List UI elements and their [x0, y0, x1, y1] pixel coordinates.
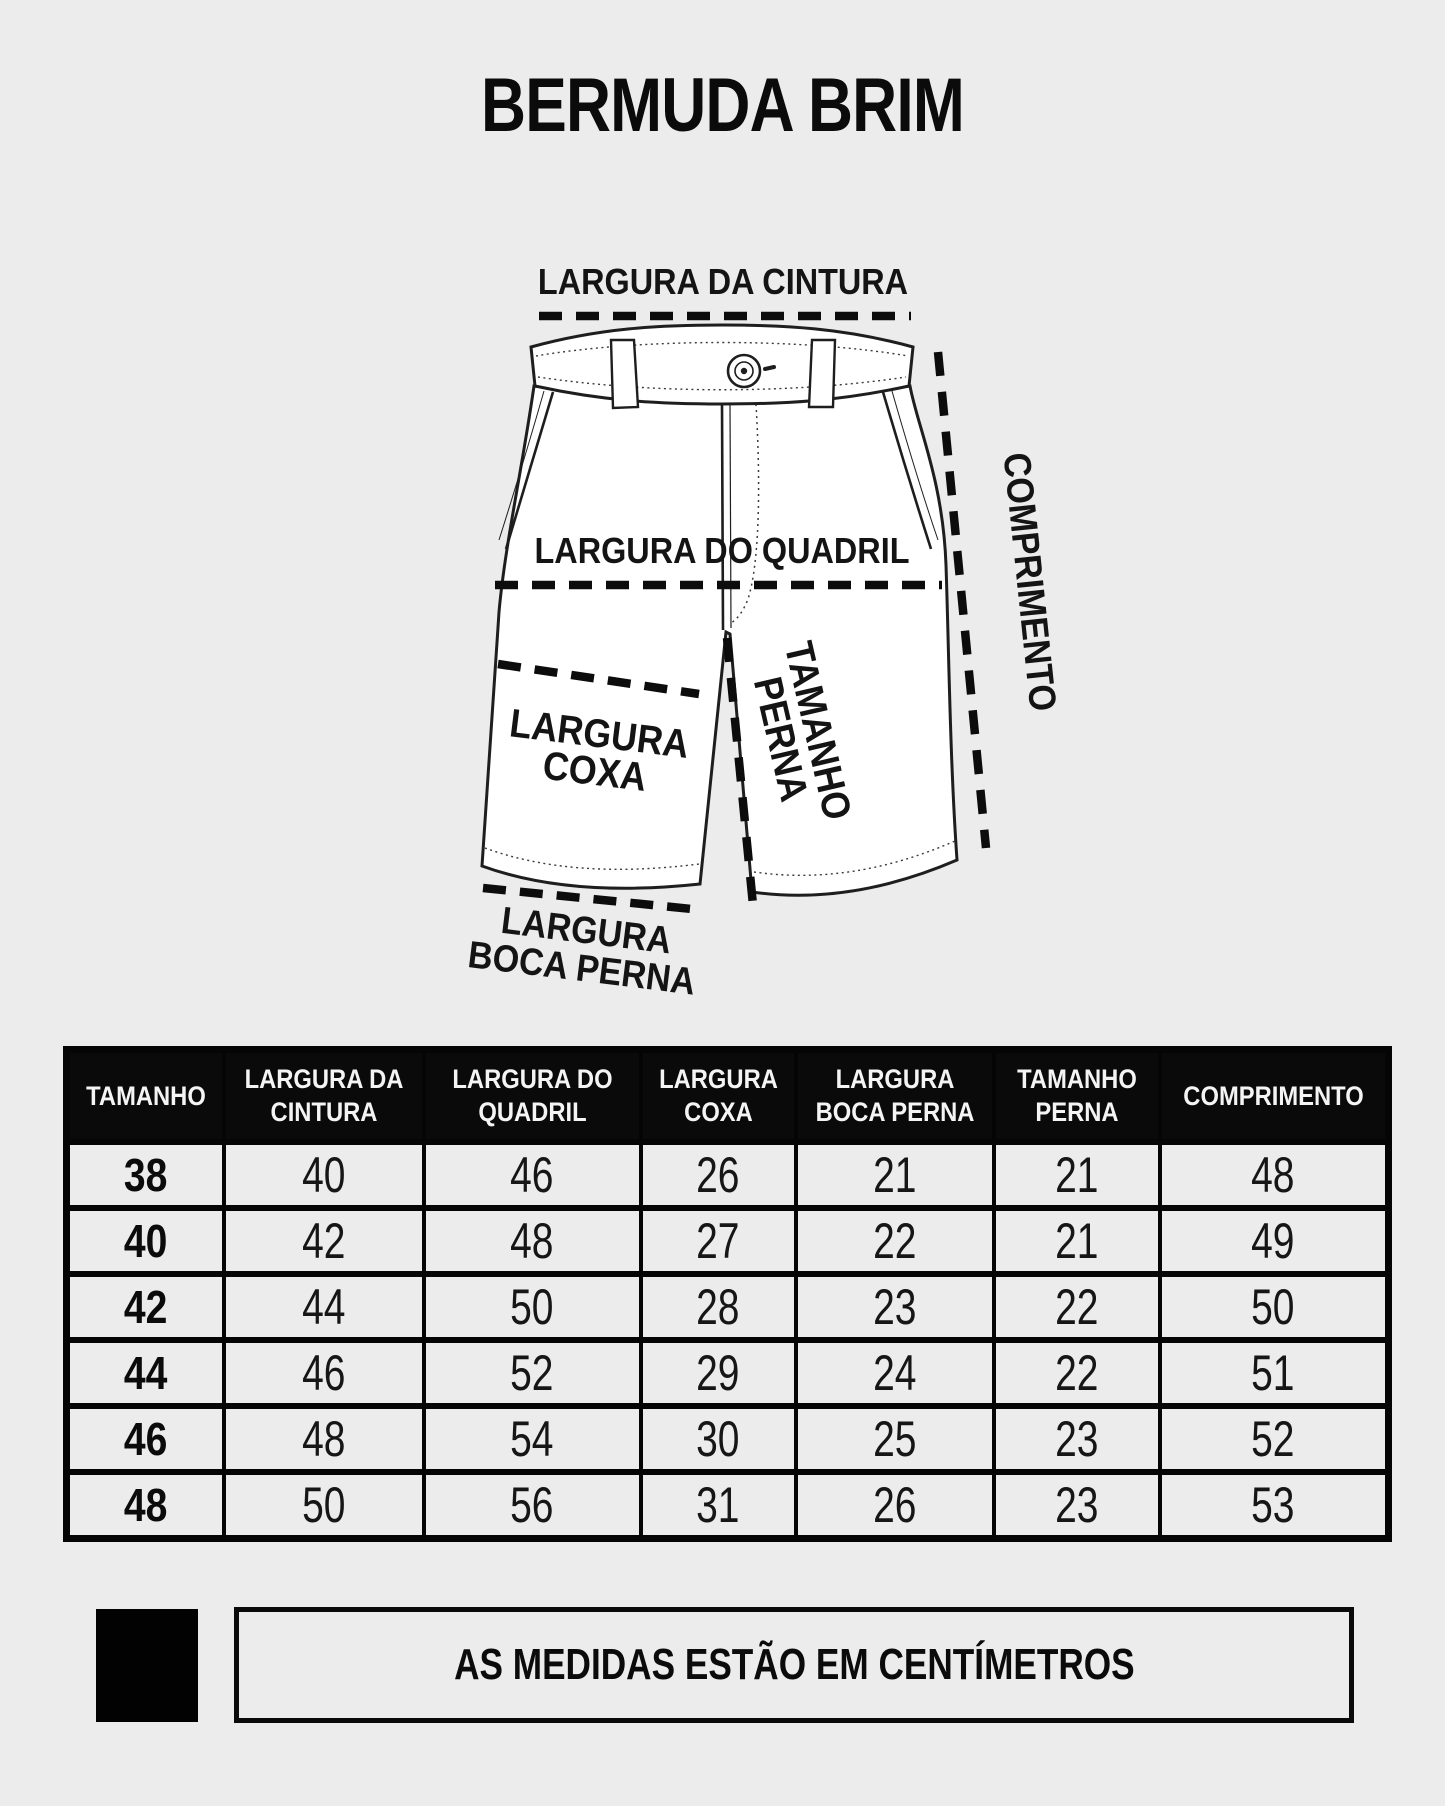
measure-cell: 22: [994, 1340, 1160, 1406]
measure-cell: 27: [641, 1208, 796, 1274]
table-header-row: TAMANHOLARGURA DA CINTURALARGURA DO QUAD…: [67, 1050, 1389, 1143]
table-row: 46485430252352: [67, 1406, 1389, 1472]
size-table: TAMANHOLARGURA DA CINTURALARGURA DO QUAD…: [63, 1046, 1392, 1542]
column-header: LARGURA DO QUADRIL: [424, 1050, 641, 1143]
units-note-box: AS MEDIDAS ESTÃO EM CENTÍMETROS: [234, 1607, 1354, 1723]
measure-cell: 25: [796, 1406, 994, 1472]
measure-cell: 31: [641, 1472, 796, 1539]
measure-cell: 48: [224, 1406, 424, 1472]
size-cell: 46: [67, 1406, 224, 1472]
measure-cell: 52: [424, 1340, 641, 1406]
column-header: LARGURA BOCA PERNA: [796, 1050, 994, 1143]
measure-cell: 46: [224, 1340, 424, 1406]
measure-cell: 30: [641, 1406, 796, 1472]
measure-cell: 29: [641, 1340, 796, 1406]
column-header: TAMANHO PERNA: [994, 1050, 1160, 1143]
units-note-text: AS MEDIDAS ESTÃO EM CENTÍMETROS: [454, 1640, 1135, 1690]
table-body: 3840462621214840424827222149424450282322…: [67, 1142, 1389, 1539]
column-header: COMPRIMENTO: [1160, 1050, 1389, 1143]
brand-block: [96, 1609, 198, 1722]
measure-cell: 53: [1160, 1472, 1389, 1539]
size-cell: 42: [67, 1274, 224, 1340]
size-cell: 38: [67, 1142, 224, 1208]
hip-label: LARGURA DO QUADRIL: [514, 532, 931, 570]
shorts-outline: [482, 325, 957, 895]
column-header: TAMANHO: [67, 1050, 224, 1143]
measure-cell: 21: [994, 1142, 1160, 1208]
column-header: LARGURA COXA: [641, 1050, 796, 1143]
measure-cell: 50: [1160, 1274, 1389, 1340]
measure-cell: 49: [1160, 1208, 1389, 1274]
measure-cell: 48: [1160, 1142, 1389, 1208]
size-cell: 44: [67, 1340, 224, 1406]
measure-cell: 21: [994, 1208, 1160, 1274]
measure-cell: 22: [994, 1274, 1160, 1340]
measure-cell: 24: [796, 1340, 994, 1406]
measure-cell: 46: [424, 1142, 641, 1208]
measure-cell: 26: [641, 1142, 796, 1208]
table-row: 40424827222149: [67, 1208, 1389, 1274]
measure-cell: 50: [224, 1472, 424, 1539]
measure-cell: 56: [424, 1472, 641, 1539]
table-row: 48505631262353: [67, 1472, 1389, 1539]
measure-cell: 23: [994, 1472, 1160, 1539]
measure-cell: 40: [224, 1142, 424, 1208]
table-row: 44465229242251: [67, 1340, 1389, 1406]
measure-cell: 23: [994, 1406, 1160, 1472]
measure-cell: 48: [424, 1208, 641, 1274]
measure-cell: 42: [224, 1208, 424, 1274]
measure-cell: 44: [224, 1274, 424, 1340]
table-row: 42445028232250: [67, 1274, 1389, 1340]
size-cell: 40: [67, 1208, 224, 1274]
size-cell: 48: [67, 1472, 224, 1539]
measure-cell: 50: [424, 1274, 641, 1340]
column-header: LARGURA DA CINTURA: [224, 1050, 424, 1143]
table-row: 38404626212148: [67, 1142, 1389, 1208]
waist-label: LARGURA DA CINTURA: [517, 263, 928, 301]
measure-cell: 51: [1160, 1340, 1389, 1406]
measure-cell: 52: [1160, 1406, 1389, 1472]
measure-cell: 21: [796, 1142, 994, 1208]
measure-cell: 22: [796, 1208, 994, 1274]
measure-cell: 23: [796, 1274, 994, 1340]
measure-cell: 26: [796, 1472, 994, 1539]
measure-cell: 28: [641, 1274, 796, 1340]
measure-cell: 54: [424, 1406, 641, 1472]
